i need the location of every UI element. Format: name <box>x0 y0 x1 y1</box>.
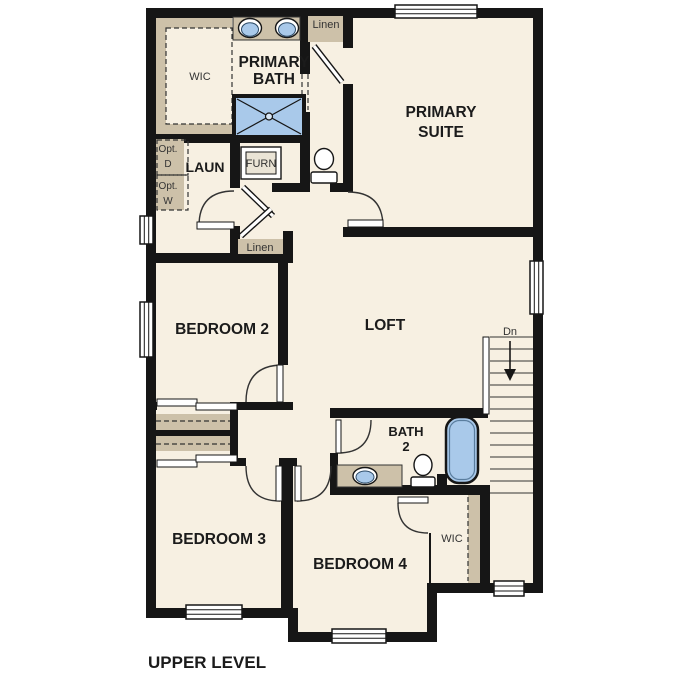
sink-basin <box>242 23 259 37</box>
wall-segment <box>437 474 447 495</box>
wall-segment <box>480 495 490 593</box>
door-leaf-primary-suite <box>348 220 383 227</box>
wall-segment <box>343 84 353 192</box>
wall-segment <box>146 253 293 263</box>
wall-segment <box>343 227 543 237</box>
floor-title: UPPER LEVEL <box>148 653 266 672</box>
floor-plan-svg: PRIMARY BATH PRIMARY SUITE WIC Linen Opt… <box>0 0 687 687</box>
door-leaf-bedroom3 <box>276 466 282 501</box>
room-label-primary-bath: BATH <box>253 71 295 88</box>
opt-dryer-label: D <box>164 159 171 170</box>
room-label-laundry: LAUN <box>186 159 225 175</box>
door-leaf-laundry <box>197 222 234 229</box>
window <box>186 605 242 619</box>
wic-shelf <box>156 18 232 28</box>
door-leaf-wic-bed4 <box>398 497 428 503</box>
toilet-tank <box>311 172 337 183</box>
toilet-tank <box>411 477 435 487</box>
room-label-bath2: BATH <box>388 424 423 439</box>
room-label-wic-primary: WIC <box>189 71 210 83</box>
door-leaf-bedroom2 <box>277 365 283 402</box>
opt-washer-label: Opt. <box>159 181 178 192</box>
bypass-door-bed2-closet <box>157 399 197 406</box>
opt-washer-label: W <box>163 196 173 207</box>
room-label-bedroom2: BEDROOM 2 <box>175 321 269 338</box>
window <box>140 302 153 357</box>
wall-segment <box>230 143 240 188</box>
closet-shelf-bed2 <box>156 414 230 430</box>
room-label-bath2: 2 <box>402 439 409 454</box>
bypass-door-bed3-closet <box>157 460 197 467</box>
sink-basin <box>356 471 374 483</box>
wall-segment <box>343 8 353 48</box>
window <box>332 629 386 643</box>
room-label-primary-suite: SUITE <box>418 124 464 141</box>
door-leaf-bath2 <box>336 420 341 453</box>
room-label-loft: LOFT <box>365 317 406 334</box>
wall-segment <box>146 402 157 410</box>
toilet-icon <box>315 149 334 170</box>
window <box>494 581 524 596</box>
floor-plan-page: PRIMARY BATH PRIMARY SUITE WIC Linen Opt… <box>0 0 687 687</box>
room-label-linen-hall: Linen <box>247 242 274 254</box>
toilet-icon <box>414 455 432 476</box>
wall-segment <box>281 466 293 608</box>
bypass-door-bed3-closet <box>196 455 237 462</box>
sink-basin <box>279 23 296 37</box>
room-label-bedroom4: BEDROOM 4 <box>313 556 407 573</box>
room-label-furnace: FURN <box>246 158 277 170</box>
stair-railing <box>483 337 489 414</box>
wic-shelf <box>156 124 232 134</box>
window <box>530 261 543 314</box>
wall-segment <box>272 183 310 192</box>
shower-drain <box>266 113 273 120</box>
room-label-linen-upper: Linen <box>313 19 340 31</box>
room-label-primary-suite: PRIMARY <box>406 104 478 121</box>
room-label-primary-bath: PRIMARY <box>239 54 311 71</box>
room-label-bedroom3: BEDROOM 3 <box>172 531 266 548</box>
wall-segment <box>279 458 297 466</box>
wic-shelf <box>156 18 166 134</box>
window <box>140 216 153 244</box>
room-label-wic-bedroom4: WIC <box>441 533 462 545</box>
window <box>395 5 477 18</box>
door-leaf-bedroom4 <box>295 466 301 501</box>
wall-segment <box>330 183 353 192</box>
wall-segment <box>230 402 293 410</box>
bathtub-icon <box>446 417 478 483</box>
bypass-door-bed2-closet <box>196 403 237 410</box>
wic-bed4-shelf <box>468 495 480 583</box>
wall-segment <box>146 430 238 437</box>
wall-segment <box>278 253 288 365</box>
stairs-down-label: Dn <box>503 326 517 338</box>
opt-dryer-label: Opt. <box>159 144 178 155</box>
